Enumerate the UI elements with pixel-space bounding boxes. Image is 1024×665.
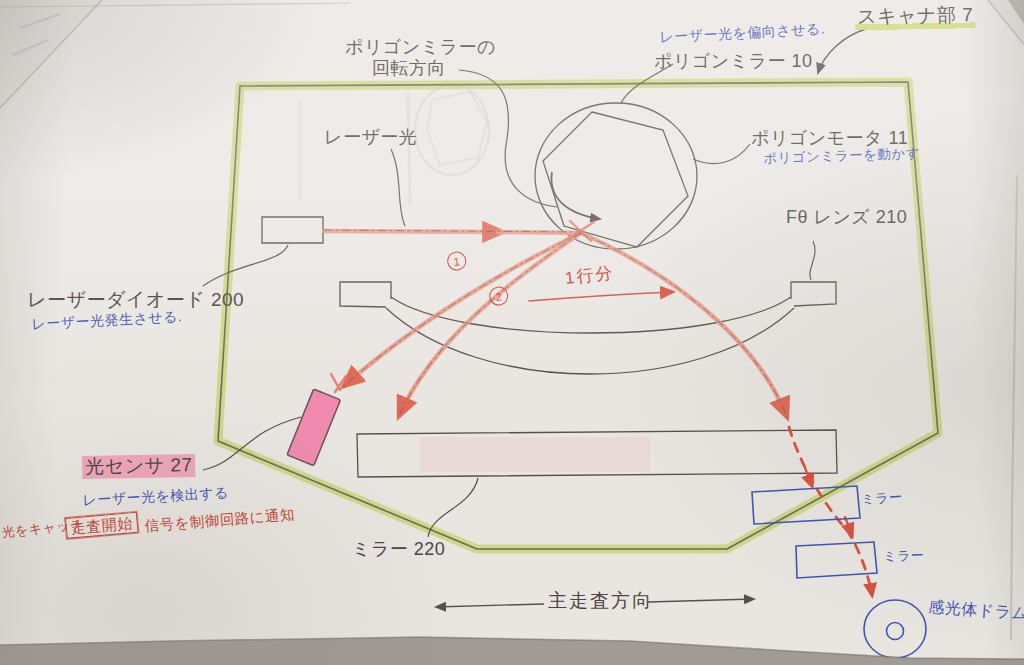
laser-light-label: レーザー光 xyxy=(324,127,417,148)
laser-diode-label-leader xyxy=(203,245,288,286)
one-line-arrow xyxy=(529,292,672,301)
mirror-220-pink-smudge xyxy=(420,437,650,472)
beam-scan-right xyxy=(581,233,787,417)
sensor-arrow-scribble xyxy=(331,374,346,392)
main-scan-direction-label: 主走査方向 xyxy=(548,590,653,612)
scanner-unit-label: スキャナ部 7 xyxy=(855,4,976,31)
beam-right-centerline xyxy=(581,233,787,417)
photo-environment xyxy=(0,0,1024,665)
mirror-hand-label-upper: ミラー xyxy=(861,490,903,508)
photoconductor-drum-inner xyxy=(887,623,904,640)
light-sensor-label: 光センサ 27 xyxy=(82,454,196,479)
laser-diode-rect xyxy=(262,217,323,243)
light-sensor-rect xyxy=(287,389,340,466)
light-sensor-group xyxy=(287,389,340,466)
annotated-scanner-diagram-photo: スキャナ部 7 ポリゴンミラー 10 ポリゴンミラーの 回転方向 レーザー光 ポ… xyxy=(0,0,1024,665)
ftheta-lens-top-arc xyxy=(391,297,791,333)
rotation-label-leader xyxy=(459,70,557,207)
main-scan-arrow-left xyxy=(436,604,544,607)
polygon-motor-label-leader xyxy=(693,144,750,164)
beam-incident-2 xyxy=(498,232,581,233)
rotation-arrow xyxy=(551,172,600,219)
hand-drawn-blue-parts xyxy=(752,486,926,658)
polygon-motor-label: ポリゴンモータ 11 xyxy=(751,128,908,149)
mirror-hand-label-lower: ミラー xyxy=(883,549,925,565)
ftheta-lens-label: Fθ レンズ 210 xyxy=(786,207,907,228)
rotation-label-line2: 回転方向 xyxy=(372,58,446,79)
polygon-mirror-hexagon xyxy=(543,112,688,247)
rotation-label-line1: ポリゴンミラーの xyxy=(345,37,496,58)
polygon-mirror-circle xyxy=(535,103,697,249)
laser-light-label-leader xyxy=(391,149,405,226)
paper-right-edge xyxy=(1011,175,1017,640)
ftheta-lens-left-tab xyxy=(340,282,391,307)
polygon-mirror-label: ポリゴンミラー 10 xyxy=(654,51,813,72)
mirror-220-label: ミラー 220 xyxy=(352,539,445,560)
diagram-drawing xyxy=(0,0,1024,665)
printed-linework xyxy=(203,29,866,607)
main-scan-arrow-right xyxy=(648,599,754,602)
photoconductor-drum-outer xyxy=(864,600,926,658)
ftheta-lens-right-tab xyxy=(791,282,836,306)
laser-diode-label: レーザーダイオード 200 xyxy=(27,289,244,311)
hand-mirror-lower-rect xyxy=(796,542,877,578)
ftheta-label-leader xyxy=(810,241,815,280)
